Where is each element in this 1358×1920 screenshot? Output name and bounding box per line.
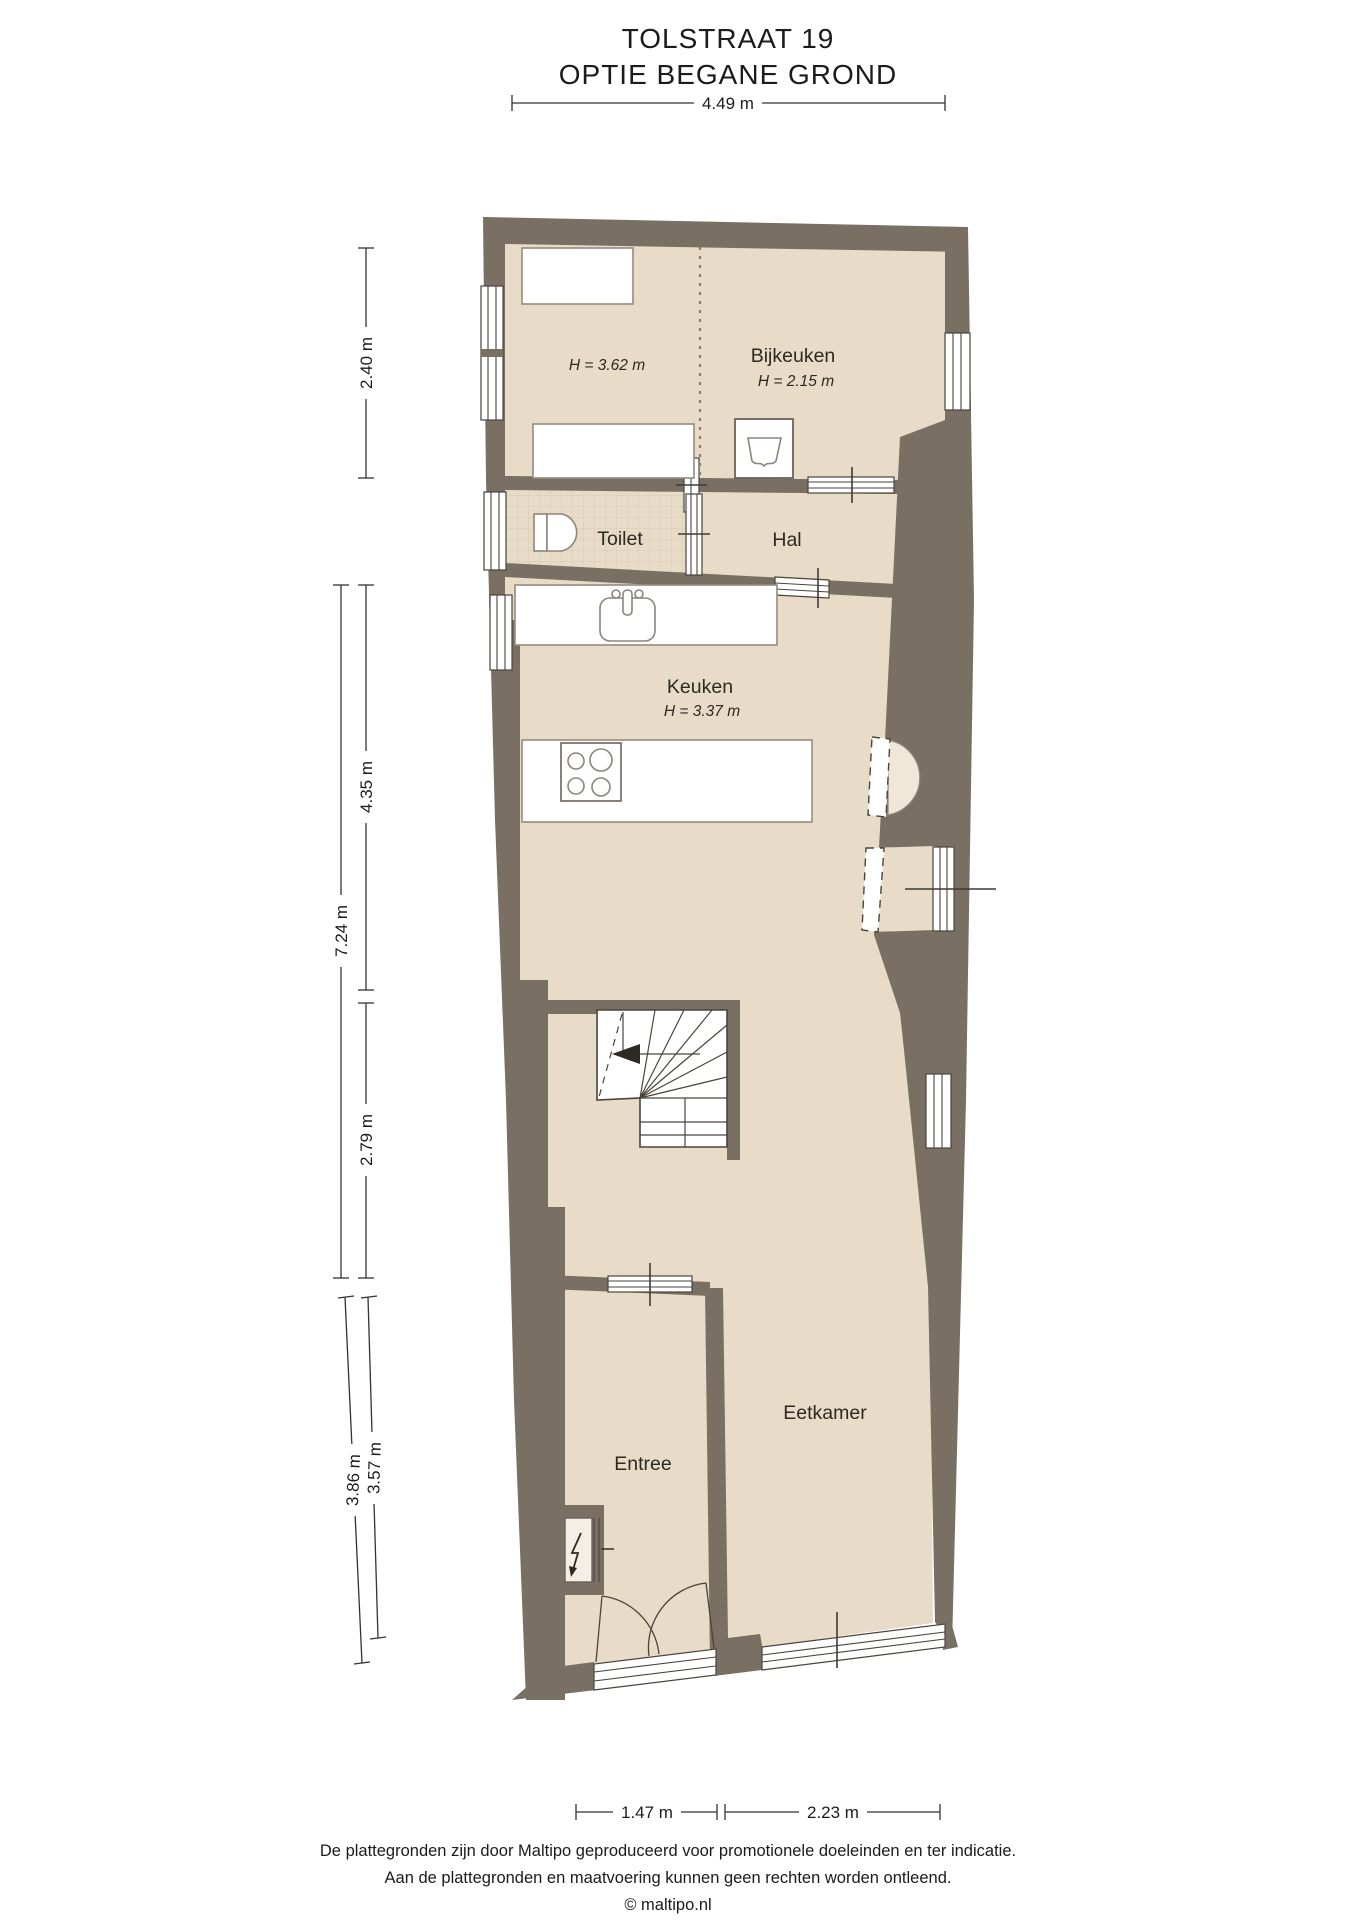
wall-stairs-right bbox=[727, 1010, 740, 1160]
page-title: TOLSTRAAT 19 bbox=[622, 23, 835, 54]
window-left-top bbox=[481, 286, 503, 420]
svg-text:2.23 m: 2.23 m bbox=[807, 1803, 859, 1822]
svg-text:2.79 m: 2.79 m bbox=[357, 1114, 376, 1166]
dim-left-bottom-inner: 3.57 m bbox=[360, 1296, 386, 1639]
label-keuken: Keuken bbox=[667, 676, 733, 698]
label-scullery-height: H = 3.62 m bbox=[569, 357, 645, 374]
window-right-lower bbox=[926, 1074, 951, 1148]
sink-icon bbox=[600, 590, 655, 641]
dim-bottom-left: 1.47 m bbox=[576, 1800, 717, 1824]
counter-scullery bbox=[533, 424, 694, 478]
dim-left-total: 7.24 m bbox=[328, 585, 352, 1278]
label-bijkeuken: Bijkeuken bbox=[751, 345, 836, 367]
label-entree: Entree bbox=[614, 1453, 671, 1475]
footer-line2: Aan de plattegronden en maatvoering kunn… bbox=[385, 1869, 952, 1887]
svg-text:7.24 m: 7.24 m bbox=[332, 905, 351, 957]
washing-machine-icon bbox=[735, 419, 793, 478]
toilet-icon bbox=[534, 514, 577, 551]
window-left-keuken bbox=[490, 595, 512, 670]
label-keuken-height: H = 3.37 m bbox=[664, 703, 740, 720]
footer-copyright: © maltipo.nl bbox=[624, 1896, 711, 1914]
dim-left-mid-upper: 4.35 m bbox=[353, 585, 377, 990]
floor-plan: H = 3.62 m Bijkeuken H = 2.15 m Toilet H… bbox=[0, 0, 1358, 1920]
wall-bottom-left bbox=[512, 1662, 596, 1700]
dim-left-mid-lower: 2.79 m bbox=[353, 1003, 377, 1278]
svg-text:1.47 m: 1.47 m bbox=[621, 1803, 673, 1822]
stove-icon bbox=[561, 743, 621, 801]
floorplan-page: H = 3.62 m Bijkeuken H = 2.15 m Toilet H… bbox=[0, 0, 1358, 1920]
toilet-tile-floor bbox=[505, 490, 686, 577]
dim-top-width: 4.49 m bbox=[512, 91, 945, 115]
dim-bottom-right: 2.23 m bbox=[725, 1800, 940, 1824]
svg-text:3.57 m: 3.57 m bbox=[364, 1442, 385, 1495]
window-left-toilet bbox=[484, 492, 506, 570]
label-bijkeuken-height: H = 2.15 m bbox=[758, 373, 834, 390]
footer-line1: De plattegronden zijn door Maltipo gepro… bbox=[320, 1842, 1016, 1860]
svg-text:4.35 m: 4.35 m bbox=[357, 761, 376, 813]
window-right-top bbox=[945, 333, 970, 410]
dim-left-top: 2.40 m bbox=[353, 248, 377, 478]
label-hal: Hal bbox=[772, 529, 801, 551]
footer: De plattegronden zijn door Maltipo gepro… bbox=[320, 1842, 1016, 1914]
label-toilet: Toilet bbox=[597, 528, 643, 550]
page-subtitle: OPTIE BEGANE GROND bbox=[559, 59, 898, 90]
counter-top-left bbox=[522, 248, 633, 304]
svg-text:2.40 m: 2.40 m bbox=[357, 337, 376, 389]
svg-text:4.49 m: 4.49 m bbox=[702, 94, 754, 113]
label-eetkamer: Eetkamer bbox=[783, 1402, 867, 1424]
floor-entree-eetkamer bbox=[548, 1278, 933, 1674]
